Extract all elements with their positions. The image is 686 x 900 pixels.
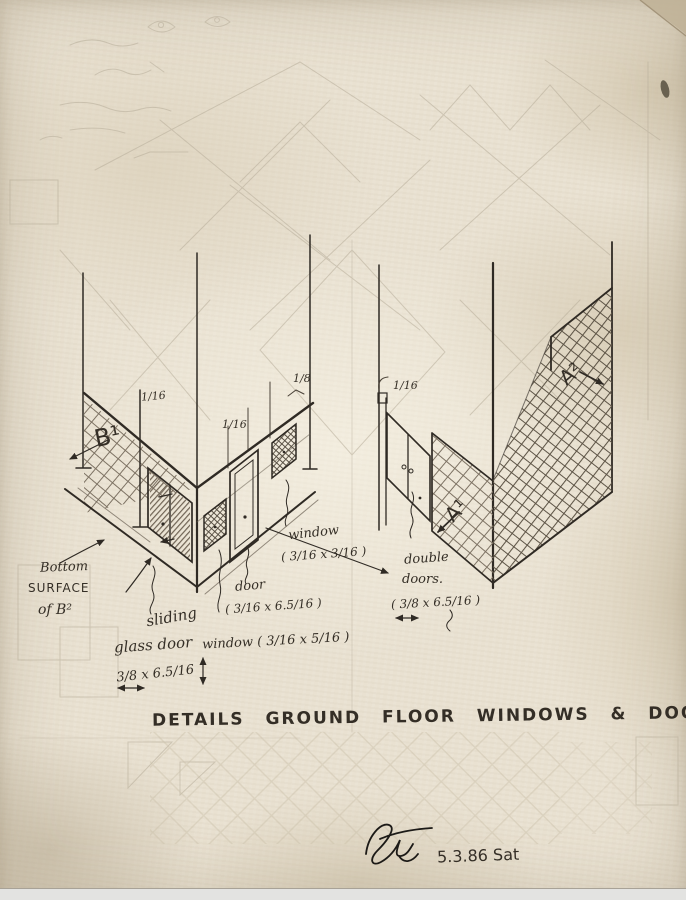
date-note: 5.3.86 Sat [437, 845, 520, 867]
dim-left-wall: 1/16 [141, 389, 167, 404]
note-bottom-surface-2: SURFACE [28, 581, 90, 595]
scan-edge [0, 888, 686, 900]
arrow-bottom-surface-2 [126, 558, 151, 592]
note-window-upper: window ( 3/16 x 3/16 ) [281, 523, 367, 564]
window-upper [272, 424, 296, 478]
note-bottom-surface-3: of B² [38, 602, 72, 618]
torn-corner [640, 0, 686, 99]
window-lower [204, 499, 226, 551]
ink-smudge [659, 79, 671, 98]
double-doors [387, 413, 430, 521]
note-double-1: double [404, 550, 450, 568]
hatched-surface-a2 [493, 288, 612, 583]
note-sliding-dims: 3/8 x 6.5/16 [116, 662, 195, 685]
note-door: door ( 3/16 x 6.5/16 ) [225, 577, 323, 616]
note-door-1: door [234, 577, 266, 595]
leader-sliding-door [150, 566, 155, 614]
right-structure [378, 242, 612, 588]
note-sliding-2: glass door [113, 633, 193, 656]
note-sliding-door: sliding glass door 3/8 x 6.5/16 [113, 604, 198, 686]
sketch-drawing: B¹ A¹ A² 1/16 1/16 1/8 1/16 Bottom SURFA… [0, 0, 686, 900]
note-bottom-surface: Bottom SURFACE of B² [28, 559, 90, 618]
ground-floor-door [230, 450, 258, 562]
note-double-2: doors. [402, 572, 443, 587]
ghost-diamond-lattice [150, 732, 560, 844]
dim-window-frame: 1/8 [293, 372, 311, 385]
note-bottom-surface-1: Bottom [39, 559, 88, 576]
leader-double-doors [410, 492, 414, 538]
note-window-lower: window ( 3/16 x 5/16 ) [202, 630, 350, 653]
note-double-dims: ( 3/8 x 6.5/16 ) [391, 593, 481, 612]
marker-b1: B¹ [92, 420, 123, 453]
note-door-dims: ( 3/16 x 6.5/16 ) [225, 596, 323, 617]
dim-door-frame: 1/16 [222, 418, 247, 431]
note-window-upper-1: window [288, 523, 340, 543]
sheet-title: DETAILS GROUND FLOOR WINDOWS & DOORS [152, 703, 686, 731]
dim-squiggle-double [447, 610, 453, 631]
note-sliding-1: sliding [145, 604, 198, 631]
ghost-diamond-lattice-right [560, 742, 652, 834]
scanned-sketch-page: B¹ A¹ A² 1/16 1/16 1/8 1/16 Bottom SURFA… [0, 0, 686, 900]
leader-window-upper [285, 480, 289, 526]
dim-right-wall: 1/16 [393, 379, 418, 392]
